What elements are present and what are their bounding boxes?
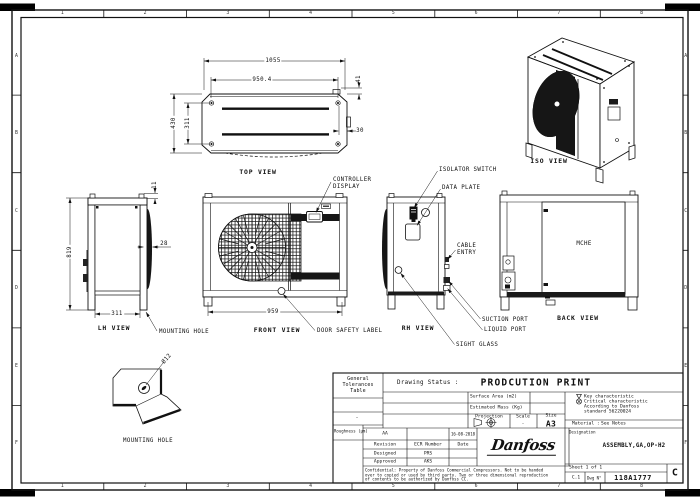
back-view-geometry xyxy=(500,191,638,310)
surface-area-label: Surface Area (m2) xyxy=(470,395,517,400)
scale-label: Scale xyxy=(516,415,530,420)
dim-top-depth: 430 xyxy=(171,116,177,130)
grid-row-label: E xyxy=(683,328,689,406)
drawing-status-label: Drawing Status : xyxy=(397,380,458,386)
grid-col-label: 6 xyxy=(435,483,518,491)
rh-view-geometry xyxy=(382,194,450,310)
revision-date: 16-08-2018 xyxy=(451,432,475,437)
lh-view-geometry xyxy=(83,194,152,310)
approved-label: Approved xyxy=(374,460,396,465)
grid-row-label: D xyxy=(683,250,689,328)
revision-header: Revision xyxy=(374,442,396,447)
rh-view-title: RH VIEW xyxy=(402,324,435,332)
dim-top-inner-width: 950.4 xyxy=(251,77,272,83)
material-label: Material : xyxy=(572,422,600,427)
designed-value: PRS xyxy=(424,451,432,456)
grid-col-label: 1 xyxy=(21,483,104,491)
dwg-number-label: Dwg N° xyxy=(587,475,601,480)
dim-lh-width: 311 xyxy=(110,311,124,317)
grid-col-label: 5 xyxy=(352,10,435,18)
isolator-switch-callout: ISOLATOR SWITCH xyxy=(439,167,497,173)
cable-entry-callout: ENTRY xyxy=(457,250,476,256)
lh-view-title: LH VIEW xyxy=(98,324,131,332)
estimated-mass-label: Estimated Mass (Kg) xyxy=(470,406,523,411)
sheet-number: Sheet 1 of 1 xyxy=(569,466,602,471)
revision-letter: C xyxy=(672,468,678,479)
grid-col-label: 8 xyxy=(600,10,683,18)
door-safety-label-callout: DOOR SAFETY LABEL xyxy=(317,328,382,334)
data-plate-callout: DATA PLATE xyxy=(442,185,480,191)
front-view-geometry xyxy=(203,194,347,307)
back-view-title: BACK VIEW xyxy=(557,314,599,322)
grid-col-label: 7 xyxy=(518,10,601,18)
designation-label: Designation xyxy=(569,430,596,435)
grid-col-label: 2 xyxy=(104,10,187,18)
grid-row-label: F xyxy=(12,405,21,483)
grid-col-label: 3 xyxy=(187,483,270,491)
grid-row-label: A xyxy=(683,18,689,96)
revision-current: AA xyxy=(382,432,388,437)
date-header: Date xyxy=(457,442,468,447)
controller-display-callout: CONTROLLER xyxy=(333,177,371,183)
size-value: A3 xyxy=(546,419,556,428)
grid-col-label: 5 xyxy=(352,483,435,491)
grid-ref-right: ABCDEF xyxy=(683,18,689,483)
tolerances-title: Table xyxy=(350,388,366,394)
grid-row-label: B xyxy=(683,95,689,173)
dim-top-hole-pitch: 311 xyxy=(185,116,191,130)
designed-label: Designed xyxy=(374,451,396,456)
grid-row-label: C xyxy=(12,173,21,251)
suction-port-callout: SUCTION PORT xyxy=(482,317,528,323)
grid-col-label: 3 xyxy=(187,10,270,18)
size-label: Size xyxy=(545,414,556,419)
drawing-sheet: 12345678 12345678 ABCDEF ABCDEF 1055 950… xyxy=(0,0,700,500)
approved-value: AKS xyxy=(424,460,432,465)
grid-ref-left: ABCDEF xyxy=(12,18,21,483)
controller-display-callout: DISPLAY xyxy=(333,184,360,190)
danfoss-logo: Danfoss xyxy=(487,436,559,456)
grid-ref-top: 12345678 xyxy=(21,10,683,18)
grid-row-label: E xyxy=(12,328,21,406)
mounting-detail-geometry xyxy=(113,363,181,424)
dim-top-offset: 41 xyxy=(356,75,362,83)
roughness-label: Roughness (μm) xyxy=(334,429,368,434)
liquid-port-callout: LIQUID PORT xyxy=(484,327,526,333)
grid-col-label: 1 xyxy=(21,10,104,18)
grid-col-label: 2 xyxy=(104,483,187,491)
grid-ref-bottom: 12345678 xyxy=(21,483,683,491)
format-ref: C.1 xyxy=(572,475,580,480)
cable-entry-callout: CABLE xyxy=(457,243,476,249)
mounting-detail-title: MOUNTING HOLE xyxy=(123,438,173,444)
dim-lh-coil: 28 xyxy=(160,241,168,247)
iso-view-title: ISO VIEW xyxy=(530,157,567,165)
grid-row-label: A xyxy=(12,18,21,96)
drawing-status-value: PRODCUTION PRINT xyxy=(481,377,592,388)
grid-row-label: D xyxy=(12,250,21,328)
mounting-hole-callout: MOUNTING HOLE xyxy=(159,329,209,335)
grid-col-label: 4 xyxy=(269,10,352,18)
scale-value: - xyxy=(522,422,525,427)
dim-top-corner: 30 xyxy=(356,128,364,134)
standard-note: standard 56220024 xyxy=(584,410,631,415)
top-view-dims xyxy=(170,58,362,153)
top-view-geometry xyxy=(202,90,351,158)
mche-label: MCHE xyxy=(576,241,591,247)
dim-top-width: 1055 xyxy=(264,58,281,64)
dim-lh-top: 11 xyxy=(152,181,158,189)
tolerances-dash: - xyxy=(355,415,358,421)
projection-label: Projection xyxy=(475,415,503,420)
dim-lh-height: 819 xyxy=(67,245,73,259)
confidential-note: of contents to be authorized by Danfoss … xyxy=(365,477,469,482)
grid-col-label: 8 xyxy=(600,483,683,491)
designation-value: ASSEMBLY,GA,OP-H2 xyxy=(603,443,666,449)
grid-row-label: F xyxy=(683,405,689,483)
dim-front-width: 959 xyxy=(266,309,280,315)
material-value: See Notes xyxy=(601,422,626,427)
sight-glass-callout: SIGHT GLASS xyxy=(456,342,498,348)
title-block-grid xyxy=(333,373,683,483)
grid-row-label: B xyxy=(12,95,21,173)
grid-col-label: 7 xyxy=(518,483,601,491)
grid-col-label: 6 xyxy=(435,10,518,18)
dwg-number-value: 118A1777 xyxy=(614,474,652,482)
front-view-title: FRONT VIEW xyxy=(254,326,300,334)
ecr-header: ECR Number xyxy=(414,442,442,447)
top-view-title: TOP VIEW xyxy=(239,168,276,176)
grid-row-label: C xyxy=(683,173,689,251)
grid-col-label: 4 xyxy=(269,483,352,491)
critical-characteristic-note: Critical characteristic xyxy=(584,399,648,404)
